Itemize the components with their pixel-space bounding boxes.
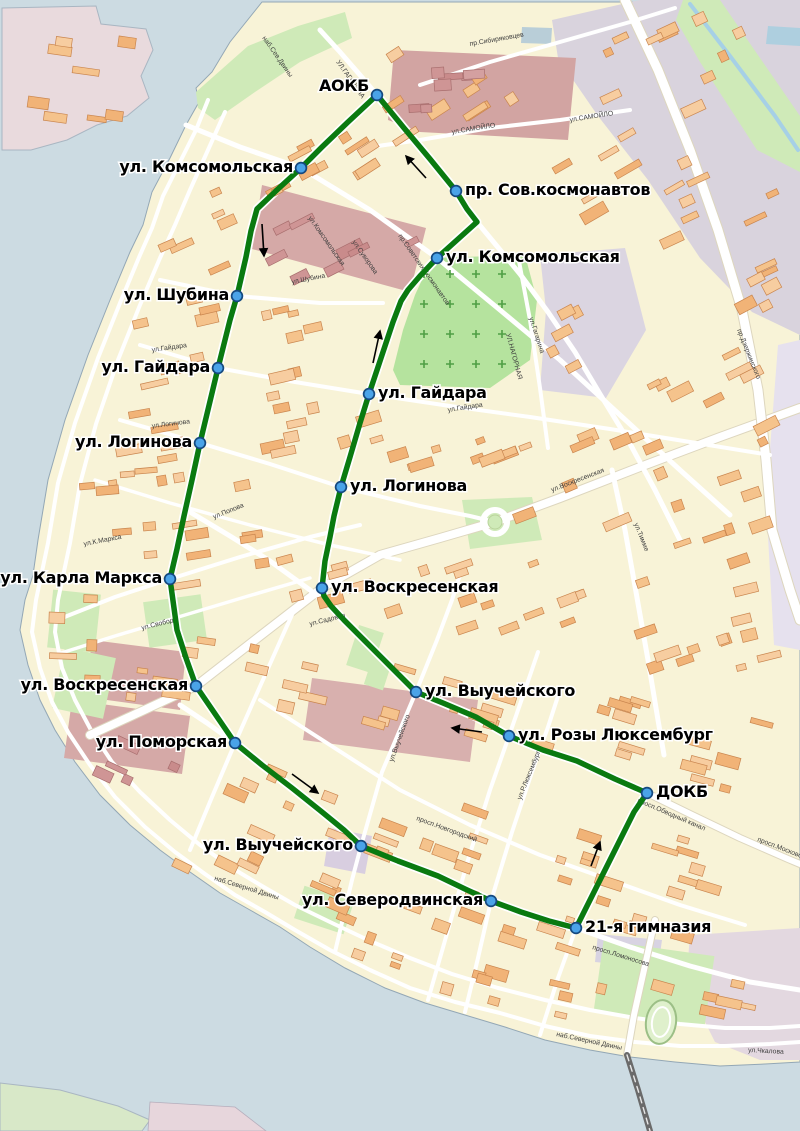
stop-label: ул. Гайдара — [378, 383, 487, 402]
city-map-canvas: наб.Сев.ДвиныУЛ.ГАГАРИНАпр.Сибиряковцеву… — [0, 0, 800, 1131]
stop-label: ДОКБ — [656, 782, 708, 801]
stop-marker[interactable] — [411, 687, 422, 698]
route-stop[interactable]: ул. Комсомольская — [432, 247, 620, 266]
stop-marker[interactable] — [336, 482, 347, 493]
route-stop[interactable]: ул. Выучейского — [411, 681, 576, 700]
stop-marker[interactable] — [230, 738, 241, 749]
route-stop[interactable]: ул. Логинова — [75, 432, 205, 451]
stop-label: ул. Карла Маркса — [0, 568, 162, 587]
stop-label: ул. Поморская — [96, 732, 227, 751]
stop-marker[interactable] — [504, 731, 515, 742]
stop-label: ул. Логинова — [350, 476, 467, 495]
stop-marker[interactable] — [486, 896, 497, 907]
stop-marker[interactable] — [432, 253, 443, 264]
stop-label: ул. Комсомольская — [446, 247, 620, 266]
stop-label: ул. Северодвинская — [302, 890, 483, 909]
stop-label: 21-я гимназия — [585, 917, 711, 936]
stop-label: пр. Сов.космонавтов — [465, 180, 650, 199]
stop-marker[interactable] — [195, 438, 206, 449]
stop-label: ул. Шубина — [124, 285, 229, 304]
stop-marker[interactable] — [213, 363, 224, 374]
route-stop[interactable]: пр. Сов.космонавтов — [451, 180, 651, 199]
route-stop[interactable]: ул. Розы Люксембург — [504, 725, 713, 744]
route-stop[interactable]: ул. Гайдара — [101, 357, 223, 376]
route-stop[interactable]: ул. Логинова — [336, 476, 467, 495]
stop-marker[interactable] — [317, 583, 328, 594]
map-screenshot: наб.Сев.ДвиныУЛ.ГАГАРИНАпр.Сибиряковцеву… — [0, 0, 800, 1131]
stop-marker[interactable] — [451, 186, 462, 197]
route-stop[interactable]: ул. Выучейского — [203, 835, 367, 854]
route-stop[interactable]: ул. Гайдара — [364, 383, 487, 402]
stop-label: ул. Комсомольская — [119, 157, 293, 176]
route-stop[interactable]: ул. Комсомольская — [119, 157, 306, 176]
stop-label: ул. Розы Люксембург — [518, 725, 713, 744]
stop-marker[interactable] — [642, 788, 653, 799]
stop-marker[interactable] — [165, 574, 176, 585]
stop-marker[interactable] — [232, 291, 243, 302]
stop-label: ул. Выучейского — [203, 835, 353, 854]
route-stop[interactable]: ул. Северодвинская — [302, 890, 497, 909]
route-stop[interactable]: ул. Воскресенская — [21, 675, 202, 694]
stop-label: АОКБ — [319, 76, 369, 95]
stop-marker[interactable] — [296, 163, 307, 174]
route-stop[interactable]: ул. Поморская — [96, 732, 241, 751]
stop-label: ул. Гайдара — [101, 357, 210, 376]
stop-marker[interactable] — [364, 389, 375, 400]
stop-marker[interactable] — [372, 90, 383, 101]
stop-label: ул. Логинова — [75, 432, 192, 451]
route-stop[interactable]: ул. Воскресенская — [317, 577, 499, 596]
stop-label: ул. Выучейского — [425, 681, 575, 700]
stop-label: ул. Воскресенская — [331, 577, 498, 596]
stop-marker[interactable] — [356, 841, 367, 852]
route-stop[interactable]: ул. Шубина — [124, 285, 243, 304]
stop-label: ул. Воскресенская — [21, 675, 188, 694]
stop-marker[interactable] — [191, 681, 202, 692]
route-stop[interactable]: 21-я гимназия — [571, 917, 712, 936]
route-stop[interactable]: ул. Карла Маркса — [0, 568, 175, 587]
stop-marker[interactable] — [571, 923, 582, 934]
